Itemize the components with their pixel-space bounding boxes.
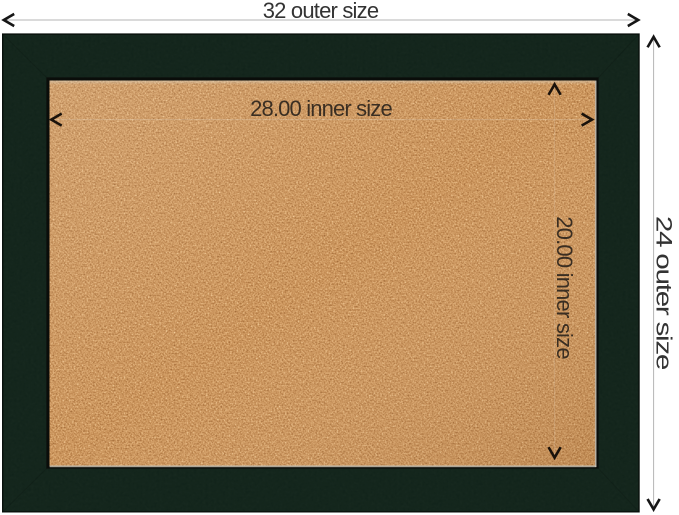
svg-text:28.00 inner size: 28.00 inner size	[250, 96, 392, 121]
svg-text:32 outer size: 32 outer size	[263, 0, 379, 23]
svg-text:20.00 inner size: 20.00 inner size	[552, 216, 577, 359]
svg-text:24 outer size: 24 outer size	[651, 216, 676, 370]
